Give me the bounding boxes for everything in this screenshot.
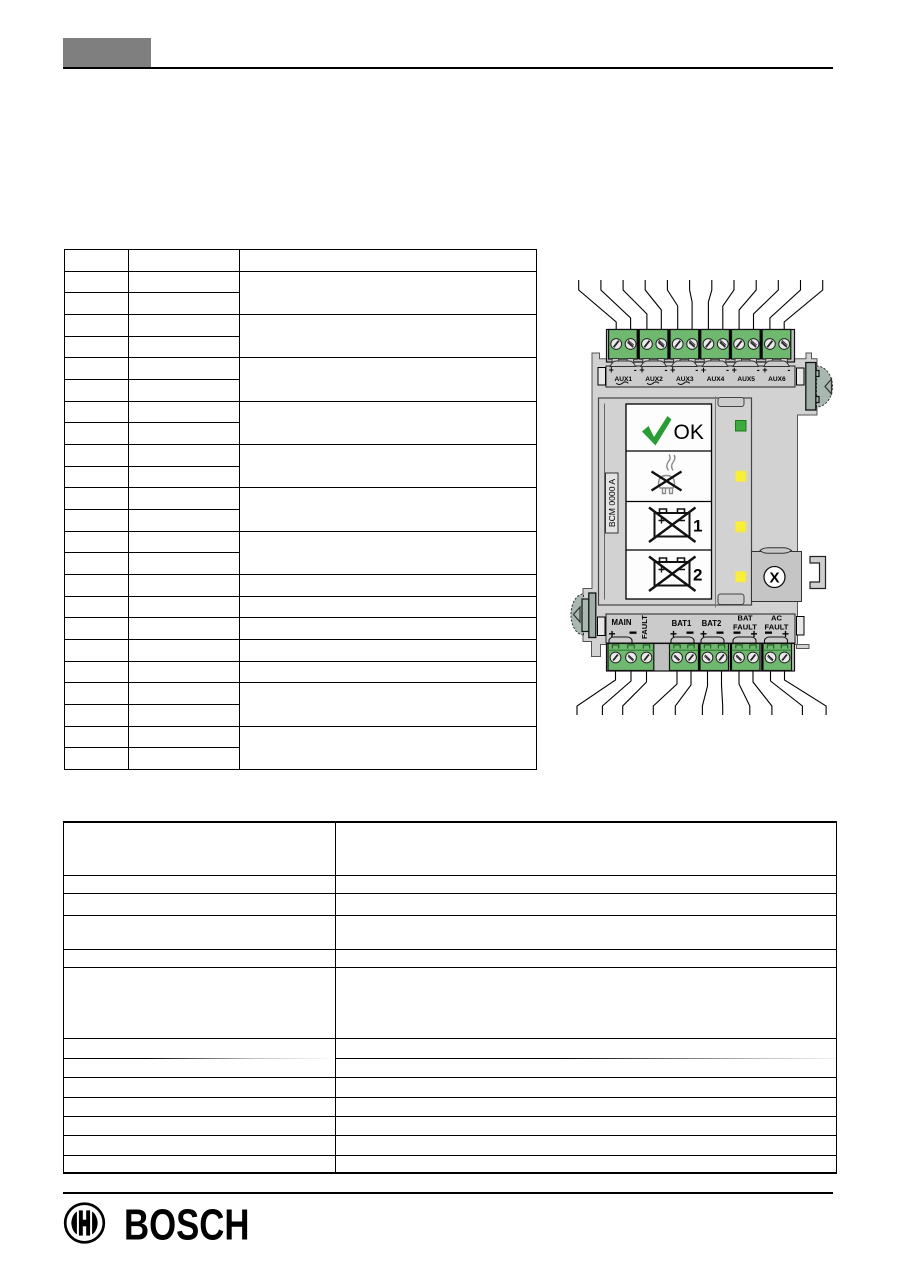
svg-text:AUX6: AUX6 <box>768 376 786 383</box>
svg-text:MAIN: MAIN <box>612 618 632 627</box>
svg-text:BOSCH: BOSCH <box>124 1201 250 1250</box>
svg-text:AUX4: AUX4 <box>707 376 725 383</box>
svg-text:1: 1 <box>693 517 702 536</box>
svg-text:X: X <box>769 570 779 587</box>
svg-text:2: 2 <box>693 566 702 585</box>
svg-text:AC: AC <box>771 614 782 623</box>
svg-text:BAT: BAT <box>737 614 752 623</box>
svg-text:FAULT: FAULT <box>640 615 649 639</box>
svg-text:AUX5: AUX5 <box>737 376 755 383</box>
svg-text:OK: OK <box>674 421 704 444</box>
svg-text:BCM 0000 A: BCM 0000 A <box>607 479 617 528</box>
